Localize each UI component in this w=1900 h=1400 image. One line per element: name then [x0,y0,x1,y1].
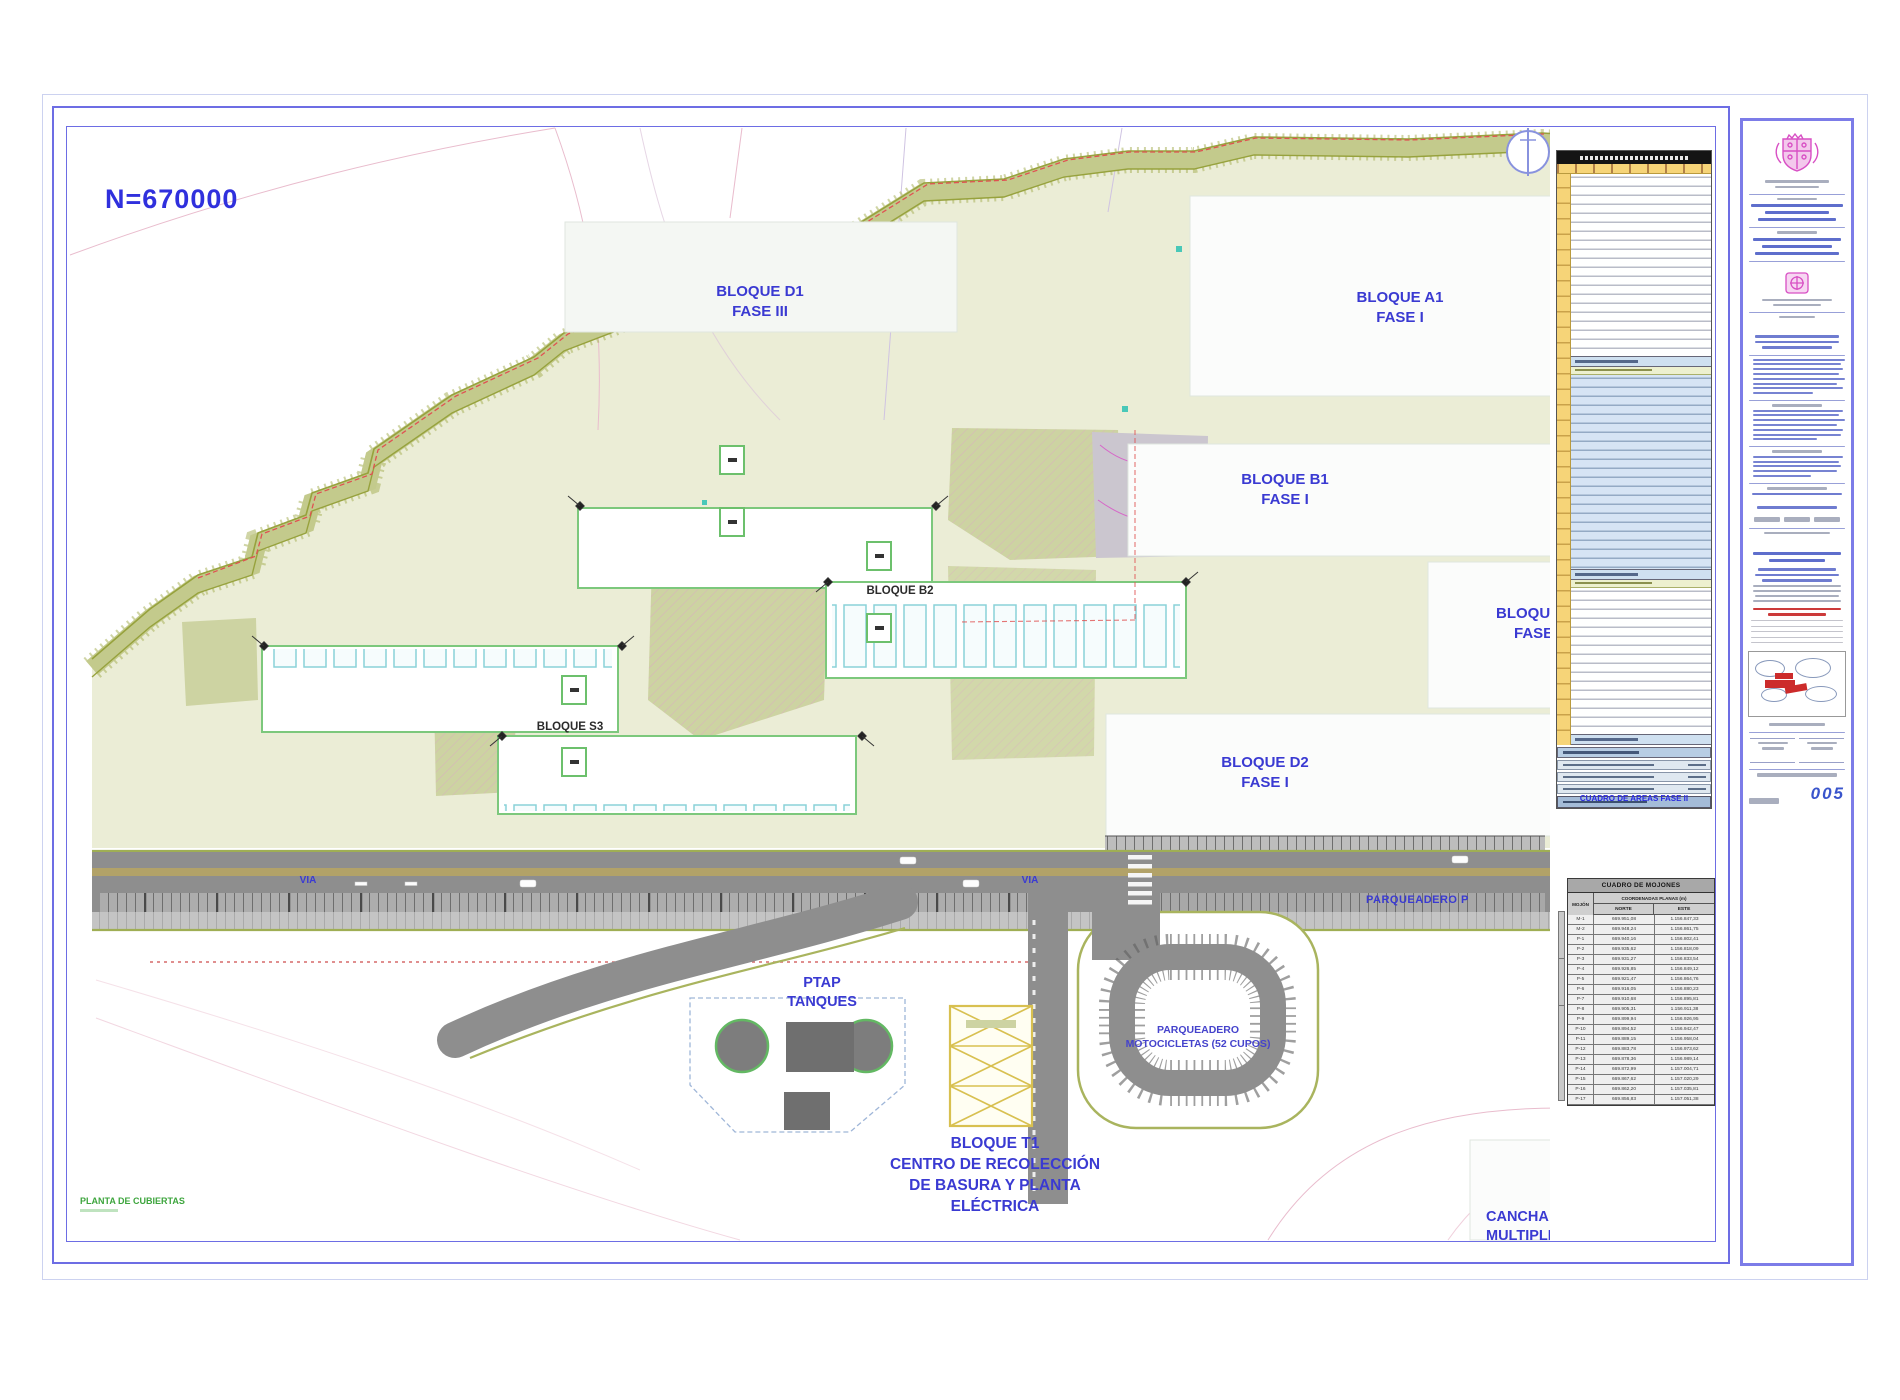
mojon-row: P-15669.867,621.157.020,29 [1568,1075,1714,1085]
ptap-tank-left [716,1020,768,1072]
label-bloque-d1: BLOQUE D1FASE III [660,282,860,321]
title-block: 005 [1740,118,1854,1266]
mojon-row: P-1669.940,161.156.802,41 [1568,935,1714,945]
t1-truss [950,1006,1032,1126]
mojon-row: P-10669.894,521.156.942,47 [1568,1025,1714,1035]
label-bloque-d2: BLOQUE D2FASE I [1165,753,1365,792]
ptap-area [690,998,905,1132]
areas-table-title-bar [1557,151,1711,164]
mojon-row: P-8669.905,311.156.911,38 [1568,1005,1714,1015]
label-bloque-b2: BLOQUE B2 [845,584,955,599]
label-via-right: VIA [1010,874,1050,887]
title-block-footer-cells [1750,738,1844,763]
areas-section-fase2 [1571,375,1711,569]
location-sketch [1748,651,1846,717]
mojon-row: P-7669.910,681.156.895,81 [1568,995,1714,1005]
mojon-row: P-12669.883,781.156.973,62 [1568,1045,1714,1055]
areas-total-fase1 [1571,356,1711,367]
mojon-row: P-17669.856,831.157.051,38 [1568,1095,1714,1105]
mojon-row: P-13669.878,361.156.989,14 [1568,1055,1714,1065]
mojon-row: M-1669.951,081.156.847,33 [1568,915,1714,925]
sheet-code-bar [1749,798,1779,804]
areas-table-header-row [1557,164,1711,174]
mojon-row: M-2669.948,241.156.861,75 [1568,925,1714,935]
areas-section-fase1 [1571,174,1711,356]
mojon-row: P-11669.889,151.156.958,04 [1568,1035,1714,1045]
ptap-structure-small [784,1092,830,1130]
label-ptap: PTAPTANQUES [752,974,892,1012]
mojon-row: P-9669.899,941.156.926,95 [1568,1015,1714,1025]
moto-parking [1078,905,1318,1128]
north-coordinate-label: N=670000 [105,182,238,217]
areas-table-caption: CUADRO DE AREAS FASE II [1556,794,1712,803]
label-via-left: VIA [288,874,328,887]
mojon-row: P-3669.931,271.156.833,54 [1568,955,1714,965]
parking-row-upper [1105,836,1545,850]
mojon-row: P-16669.862,201.157.035,81 [1568,1085,1714,1095]
ptap-structure [786,1022,854,1072]
areas-total-fase3 [1571,734,1711,745]
mojones-col-norte: NORTE [1594,904,1654,914]
mojon-row: P-6669.916,051.156.880,23 [1568,985,1714,995]
label-bloque-s3: BLOQUE S3 [515,720,625,735]
mojon-row: P-14669.872,991.157.004,71 [1568,1065,1714,1075]
label-bloque-t1: BLOQUE T1CENTRO DE RECOLECCIÓN DE BASURA… [845,1134,1145,1218]
city-crest-icon [1773,131,1821,177]
label-bloque-b1: BLOQUE B1FASE I [1185,470,1385,509]
mojones-table-title: CUADRO DE MOJONES [1568,879,1714,893]
label-bloque-a1: BLOQUE A1FASE I [1300,288,1500,327]
areas-total-fase2 [1571,569,1711,580]
university-emblem-icon [1782,270,1812,296]
label-cancha: CANCHAMULTIPLE [1486,1208,1550,1246]
sheet-number: 005 [1811,784,1845,804]
label-moto-parking: PARQUEADEROMOTOCICLETAS (52 CUPOS) [1100,1024,1296,1051]
plan-scale-line [80,1209,118,1212]
mojon-row: P-5669.921,471.156.864,76 [1568,975,1714,985]
label-parqueadero: PARQUEADERO P [1366,893,1550,907]
areas-table [1556,150,1712,809]
label-bloque-edge: BLOQUEFASE [1496,604,1556,643]
mojones-table: CUADRO DE MOJONES MOJÓN COORDENADAS PLAN… [1567,878,1715,1106]
mojones-col-este: ESTE [1654,904,1714,914]
mojones-group-band [1558,911,1565,1101]
mojon-row: P-2669.935,621.156.818,09 [1568,945,1714,955]
mojones-rows: M-1669.951,081.156.847,33M-2669.948,241.… [1568,915,1714,1105]
plan-title: PLANTA DE CUBIERTAS [80,1196,185,1212]
mojon-row: P-4669.926,851.156.849,12 [1568,965,1714,975]
areas-section-fase3 [1571,588,1711,734]
mojones-col-coords: COORDENADAS PLANAS (m) [1594,893,1714,904]
mojones-col-mojon: MOJÓN [1568,893,1594,915]
fase-band [1557,174,1571,745]
site-plan-sheet: N=670000 BLOQUE D1FASE III BLOQUE A1FASE… [0,0,1900,1400]
